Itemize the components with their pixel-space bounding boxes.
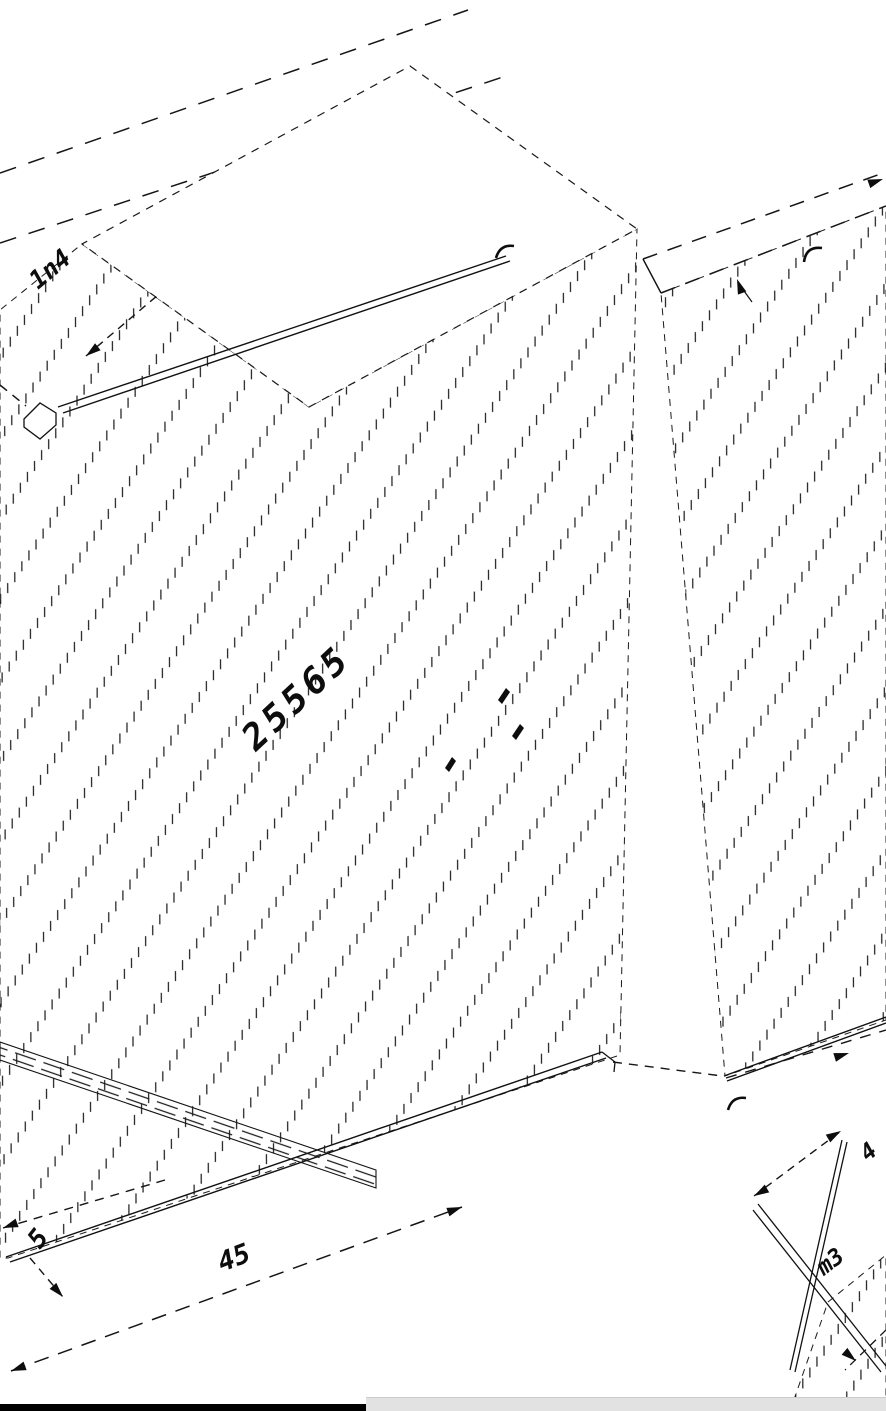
main-wall-face (0, 229, 722, 1262)
horizontal-scrollbar[interactable] (366, 1397, 886, 1411)
right-panel (643, 172, 886, 1110)
isometric-drawing-canvas: 1n4 25565 45 5 0 m3 4 (0, 0, 886, 1411)
drawing-viewport[interactable]: 1n4 25565 45 5 0 m3 4 (0, 0, 886, 1411)
label-right-edge-clipped: 4 (855, 1138, 882, 1167)
label-bottom-dim: 45 (213, 1238, 254, 1279)
bottom-border-line (0, 1404, 366, 1411)
leader-curl (728, 1098, 746, 1110)
